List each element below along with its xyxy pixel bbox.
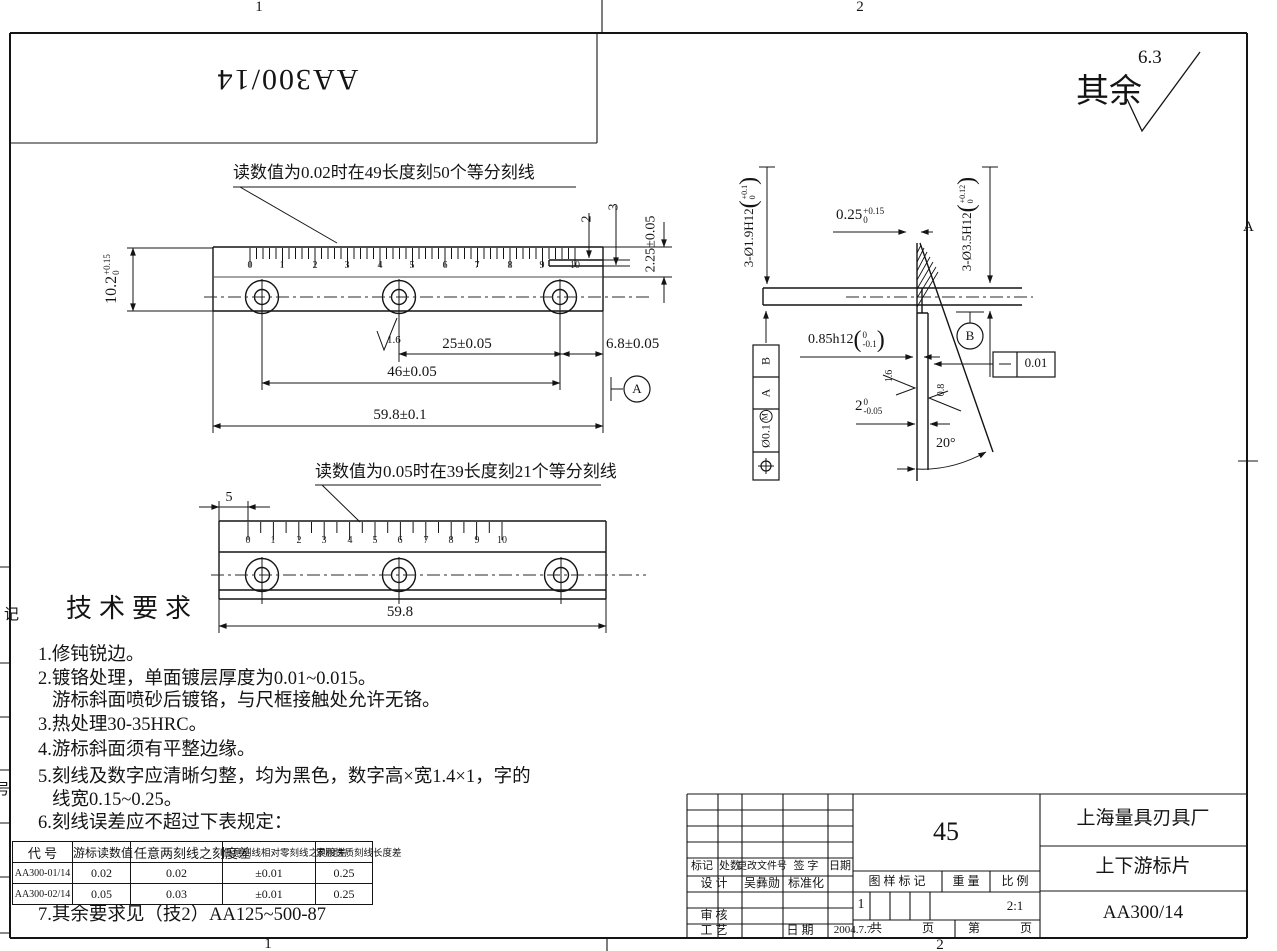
scale-number: 2 [313, 260, 318, 271]
flatness-value: 0.01 [1025, 356, 1048, 370]
finish-value-view1: 1.6 [387, 335, 401, 347]
tb-label-standardize: 标准化 [788, 877, 824, 890]
view1-callout: 读数值为0.02时在49长度刻50个等分刻线 [233, 164, 535, 182]
tech-line: 5.刻线及数字应清晰匀整，均为黑色，数字高×宽1.4×1，字的 [38, 768, 531, 787]
tech-line: 2.镀铬处理，单面镀层厚度为0.01~0.015。 [38, 670, 376, 689]
scale-number: 1 [280, 260, 285, 271]
tb-part-name: 上下游标片 [1095, 857, 1190, 877]
tb-label-sign: 签 字 [794, 861, 819, 873]
tech-line: 7.其余要求见（技2）AA125~500-87 [38, 906, 326, 925]
dim-225: 2.25±0.05 [645, 216, 660, 273]
section-hatching [917, 245, 938, 307]
scale-number: 3 [322, 535, 327, 546]
tb-label-weight: 重 量 [952, 875, 979, 888]
tb-material: 45 [933, 818, 959, 845]
dim-thickness: 20-0.05 [855, 398, 882, 416]
scale-number: 10 [497, 535, 507, 546]
scale-number: 8 [449, 535, 454, 546]
table-row: AA300-01/14 0.02 0.02 ±0.01 0.25 [13, 863, 373, 884]
scale-number: 4 [378, 260, 383, 271]
tb-label-design: 设 计 [700, 877, 727, 890]
cell: 0.05 [73, 884, 131, 905]
dim-step2: 2 [581, 216, 596, 223]
tb-drawing-no: AA300/14 [1103, 903, 1183, 923]
left-edge-partial-lower: 号 [0, 783, 10, 799]
dim-step085: 0.85h12(0-0.1) [808, 331, 885, 349]
top-left-code: AA300/14 [216, 63, 359, 95]
position-datum-b: B [760, 357, 773, 365]
scale-number: 7 [475, 260, 480, 271]
surface-note-value: 6.3 [1138, 48, 1162, 68]
cell: 0.02 [131, 863, 223, 884]
scale-number: 1 [271, 535, 276, 546]
cell: AA300-01/14 [13, 863, 73, 884]
cell: ±0.01 [223, 884, 316, 905]
col-header: 代 号 [13, 842, 73, 863]
col-header: 任意两刻线之刻度差 [131, 842, 223, 863]
dim-step3: 3 [608, 204, 623, 211]
position-datum-a: A [760, 389, 773, 398]
zone-marker-right-a: A [1243, 220, 1254, 236]
datum-b-label: B [966, 329, 975, 343]
tb-label-no: 第 [968, 922, 980, 935]
scale-number: 6 [398, 535, 403, 546]
tb-scale-value: 2:1 [1007, 899, 1024, 913]
tb-label-stamp: 图 样 标 记 [868, 875, 925, 888]
dim-68: 6.8±0.05 [606, 337, 659, 353]
view2-callout: 读数值为0.05时在39长度刻21个等分刻线 [315, 463, 617, 481]
tb-label-pages: 页 [922, 922, 934, 935]
scale-number: 5 [373, 535, 378, 546]
tb-label-mark: 标记 [691, 861, 713, 873]
tb-label-change-doc: 更改文件号 [737, 862, 787, 873]
position-tolerance: Ø0.1M [758, 410, 775, 448]
table-row: AA300-02/14 0.05 0.03 ±0.01 0.25 [13, 884, 373, 905]
part-outlines [213, 243, 1022, 599]
finish-value-16: 1.6 [885, 370, 896, 383]
tech-line: 线宽0.15~0.25。 [52, 791, 182, 810]
tb-label-process: 工 艺 [700, 924, 727, 937]
tb-stamp-value: 1 [858, 898, 865, 913]
dim-total-1: 59.8±0.1 [373, 408, 426, 424]
cell: ±0.01 [223, 863, 316, 884]
tech-line: 3.热处理30-35HRC。 [38, 716, 207, 735]
cell: 0.25 [316, 863, 373, 884]
dim-46: 46±0.05 [387, 365, 436, 381]
scale-number: 3 [345, 260, 350, 271]
dim-holes-small: 3-Ø1.9H12(+0.10) [740, 177, 758, 267]
scale-number: 10 [570, 260, 580, 271]
tolerance-table: 代 号 游标读数值 任意两刻线之刻度差 任意刻线相对零刻线之刻度差 累积性质刻线… [12, 841, 373, 905]
left-edge-partial-upper: 记 [4, 608, 19, 624]
tech-line: 游标斜面喷砂后镀铬，与尺框接触处允许无铬。 [52, 692, 441, 711]
tb-label-date: 日期 [829, 861, 851, 873]
dim-holes-big: 3-Ø3.5H12(+0.120) [958, 177, 976, 271]
zone-marker-bottom-2: 2 [936, 938, 944, 951]
scale-number: 6 [443, 260, 448, 271]
tb-label-scale: 比 例 [1001, 875, 1028, 888]
sheet-border [10, 33, 1247, 938]
tb-designer: 吴彝勋 [744, 877, 780, 890]
zone-marker-bottom-1: 1 [264, 937, 272, 951]
scale-number: 0 [246, 535, 251, 546]
datum-circles [624, 323, 983, 402]
scale-number: 9 [475, 535, 480, 546]
dim-height: 10.2+0.150 [103, 254, 121, 304]
scale-number: 2 [297, 535, 302, 546]
scale-number: 8 [508, 260, 513, 271]
material-condition-icon: M [759, 410, 772, 423]
dim-25: 25±0.05 [442, 337, 491, 353]
tb-date-value: 2004.7.7 [834, 925, 873, 937]
cell: 0.03 [131, 884, 223, 905]
scale-number: 7 [424, 535, 429, 546]
scale-number: 4 [348, 535, 353, 546]
scale-number: 0 [248, 260, 253, 271]
tech-line: 6.刻线误差应不超过下表规定： [38, 814, 292, 833]
scale-number: 5 [410, 260, 415, 271]
col-header: 累积性质刻线长度差 [316, 842, 373, 863]
frame-lines [0, 0, 1258, 951]
finish-value-08: 0.8 [937, 384, 948, 397]
dim-angle: 20° [936, 437, 956, 452]
tb-label-date2: 日 期 [786, 924, 813, 937]
cell: AA300-02/14 [13, 884, 73, 905]
tb-label-total: 共 [870, 922, 882, 935]
tb-company: 上海量具刃具厂 [1076, 809, 1209, 829]
scale-number: 9 [540, 260, 545, 271]
tb-label-page2: 页 [1020, 922, 1032, 935]
cell: 0.02 [73, 863, 131, 884]
table-header-row: 代 号 游标读数值 任意两刻线之刻度差 任意刻线相对零刻线之刻度差 累积性质刻线… [13, 842, 373, 863]
drawing-sheet: AA300/14 1 2 1 2 A 记 号 其余 6.3 读数值为0.02时在… [0, 0, 1277, 951]
tech-title: 技术要求 [66, 595, 198, 622]
cell: 0.25 [316, 884, 373, 905]
dim-total-2: 59.8 [387, 605, 413, 621]
datum-a-label: A [632, 382, 641, 396]
zone-marker-top-2: 2 [856, 0, 864, 16]
col-header: 游标读数值 [73, 842, 131, 863]
dim-tip: 0.25+0.150 [836, 207, 884, 225]
zone-marker-top-1: 1 [255, 0, 263, 16]
surface-note-label: 其余 [1076, 75, 1142, 110]
tech-line: 4.游标斜面须有平整边缘。 [38, 741, 255, 760]
dim-5: 5 [226, 491, 233, 506]
tech-line: 1.修钝锐边。 [38, 646, 144, 665]
tb-label-check: 审 核 [700, 909, 727, 922]
